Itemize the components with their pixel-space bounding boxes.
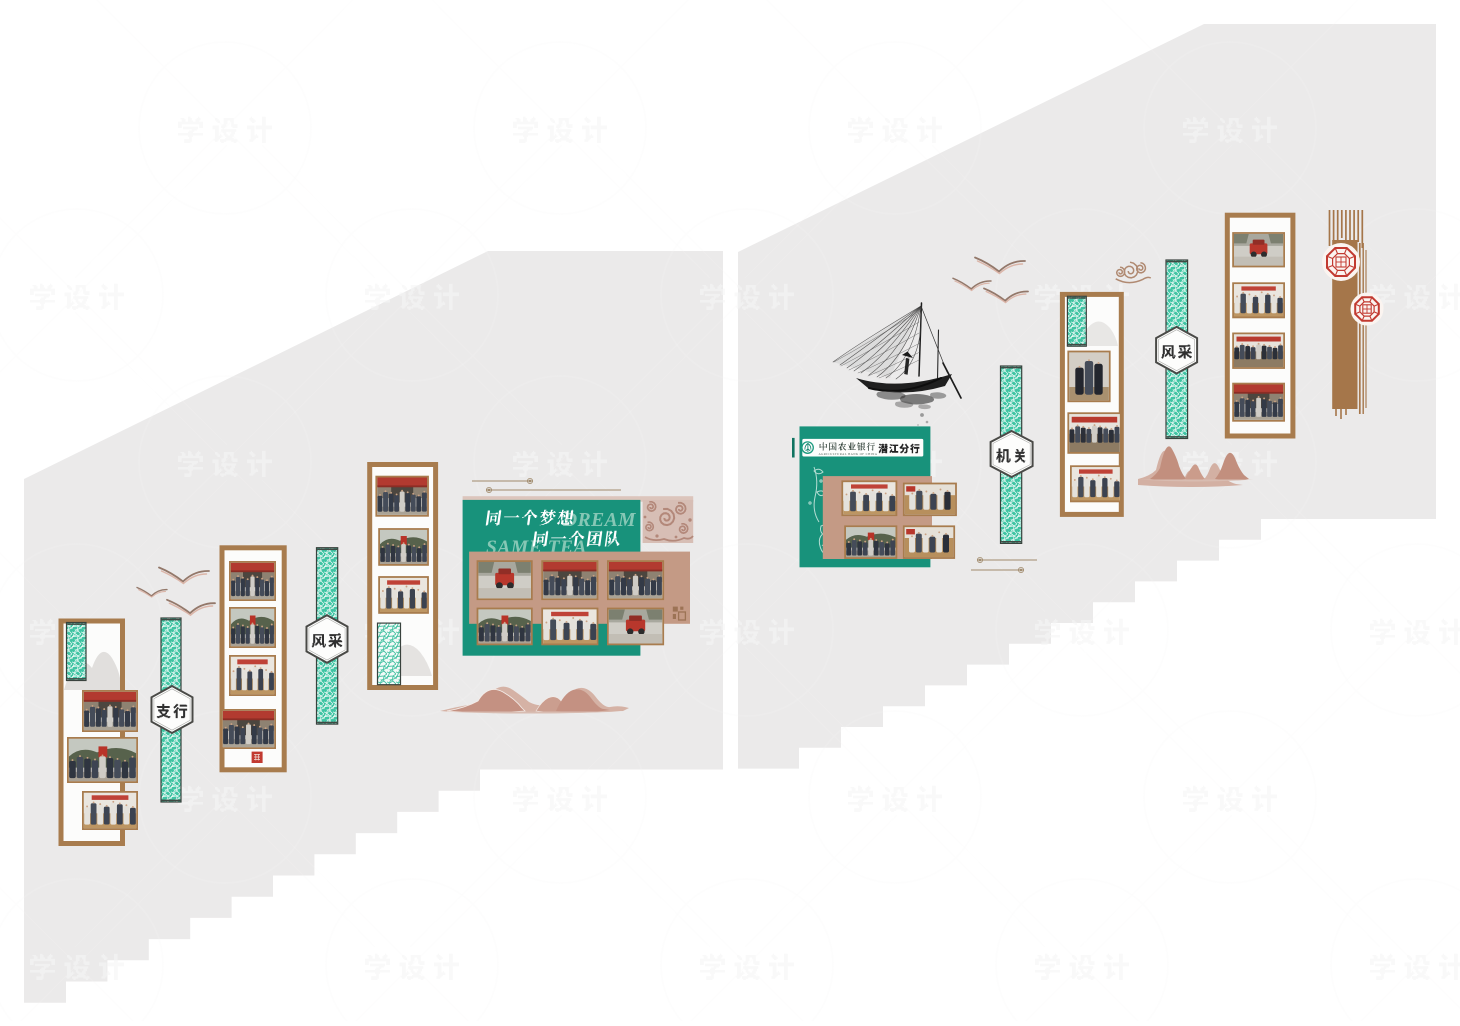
svg-text:AGRICULTURAL BANK OF CHINA: AGRICULTURAL BANK OF CHINA [819, 452, 878, 456]
svg-text:DREAM: DREAM [562, 510, 636, 531]
